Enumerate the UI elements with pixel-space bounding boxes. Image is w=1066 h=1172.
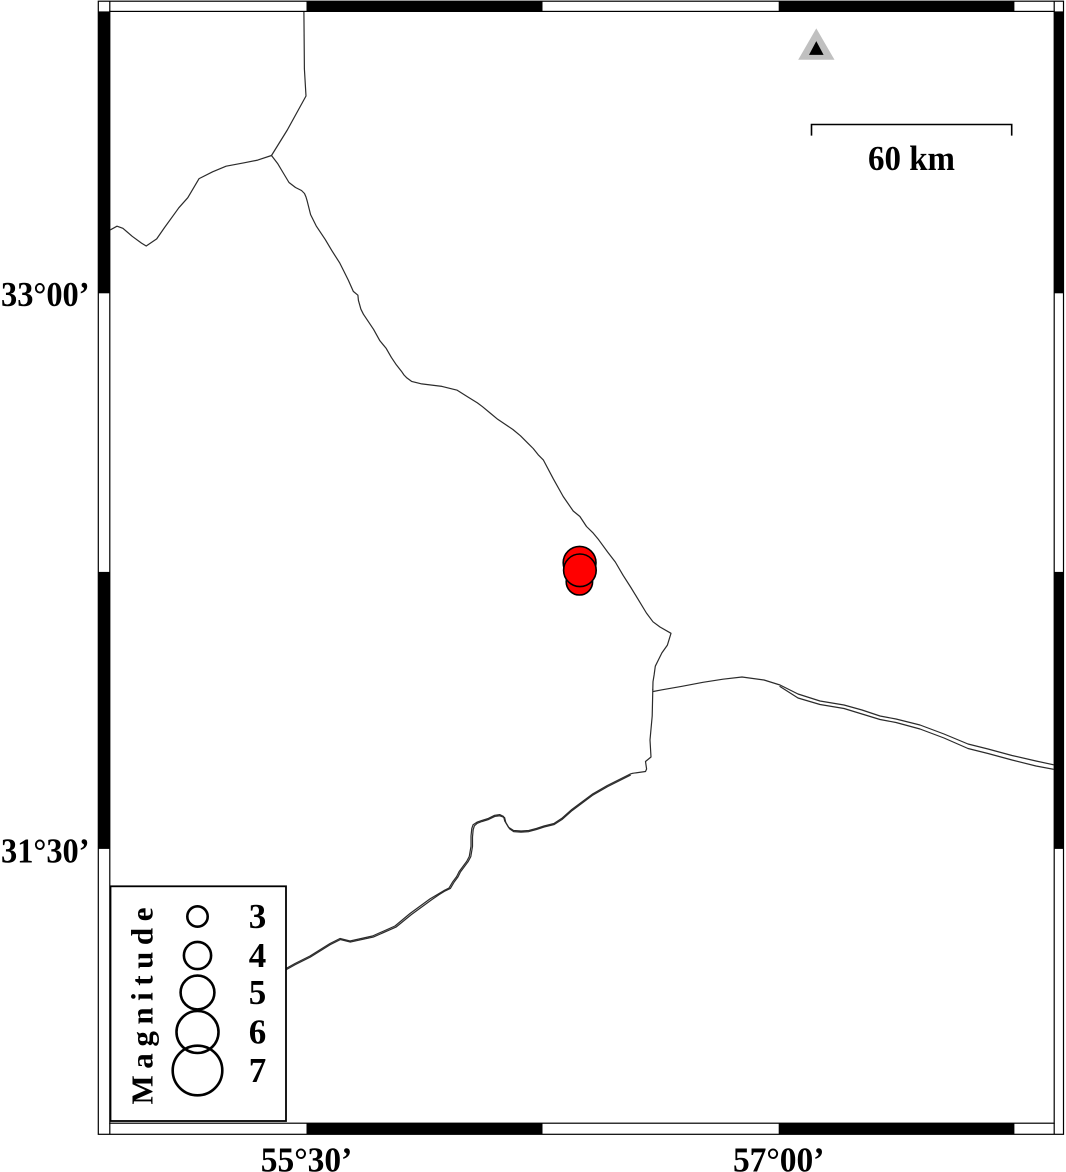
svg-text:57°00’: 57°00’ [733,1140,825,1172]
svg-text:6: 6 [249,1013,267,1052]
svg-text:60 km: 60 km [868,139,955,178]
svg-text:7: 7 [249,1051,267,1090]
svg-text:3: 3 [249,897,267,936]
svg-text:4: 4 [249,936,267,975]
svg-text:5: 5 [249,973,267,1012]
svg-text:31°30’: 31°30’ [1,832,90,871]
svg-text:55°30’: 55°30’ [261,1140,353,1172]
svg-text:33°00’: 33°00’ [1,275,90,314]
